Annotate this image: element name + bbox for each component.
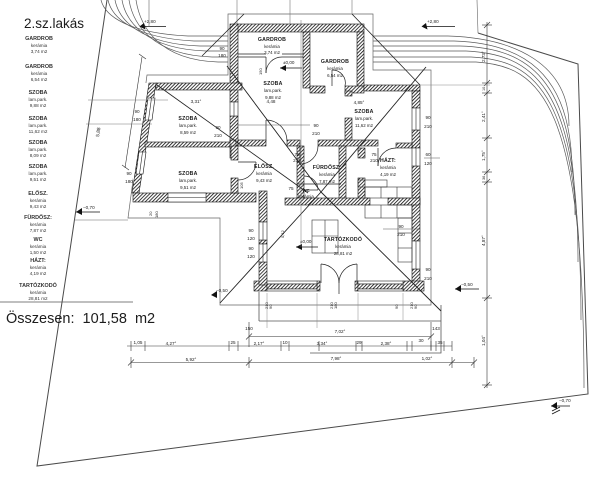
svg-text:lam.park.: lam.park. <box>179 178 197 183</box>
svg-text:kerámia: kerámia <box>30 290 47 295</box>
svg-text:5,92°: 5,92° <box>186 357 197 362</box>
svg-text:210: 210 <box>370 158 378 163</box>
svg-text:9,88 m2: 9,88 m2 <box>30 103 47 108</box>
svg-text:kerámia: kerámia <box>380 165 396 170</box>
svg-text:lam.park.: lam.park. <box>355 116 373 121</box>
svg-text:90: 90 <box>219 46 225 51</box>
svg-text:−0,50: −0,50 <box>216 288 228 293</box>
svg-text:1,05: 1,05 <box>134 340 143 345</box>
svg-text:10: 10 <box>482 87 486 91</box>
svg-text:3,31°: 3,31° <box>191 99 202 104</box>
svg-text:−0,70: −0,70 <box>83 205 95 210</box>
svg-text:25: 25 <box>230 340 236 345</box>
svg-text:210: 210 <box>424 276 432 281</box>
svg-text:3,74 m2: 3,74 m2 <box>264 50 280 55</box>
svg-text:90: 90 <box>398 224 404 229</box>
svg-text:2.sz.lakás: 2.sz.lakás <box>24 16 84 31</box>
svg-text:11,62 m2: 11,62 m2 <box>29 129 48 134</box>
svg-text:SZOBA: SZOBA <box>29 90 48 96</box>
svg-text:kerámia: kerámia <box>256 171 272 176</box>
svg-text:6,54 m2: 6,54 m2 <box>31 77 48 82</box>
svg-text:75: 75 <box>294 152 300 157</box>
svg-text:8,59 m2: 8,59 m2 <box>180 130 196 135</box>
svg-text:9,51 m2: 9,51 m2 <box>30 177 47 182</box>
svg-text:GARDROB: GARDROB <box>25 64 53 70</box>
svg-text:210: 210 <box>312 131 320 136</box>
svg-text:75: 75 <box>371 152 377 157</box>
svg-text:GARDROB: GARDROB <box>321 59 349 65</box>
svg-text:90: 90 <box>425 115 431 120</box>
svg-text:143: 143 <box>432 326 440 331</box>
svg-text:lam.park.: lam.park. <box>179 123 197 128</box>
svg-text:ELŐSZ.: ELŐSZ. <box>28 190 48 197</box>
svg-text:9,43 m2: 9,43 m2 <box>30 204 47 209</box>
svg-text:180: 180 <box>218 53 226 58</box>
svg-text:0,12: 0,12 <box>280 229 285 238</box>
svg-text:120: 120 <box>424 161 432 166</box>
svg-text:1,50 m2: 1,50 m2 <box>30 250 47 255</box>
svg-text:2,38°: 2,38° <box>381 341 392 346</box>
svg-text:HÁZT:: HÁZT: <box>380 157 396 164</box>
svg-text:kerámia: kerámia <box>319 172 335 177</box>
svg-text:90: 90 <box>134 109 140 114</box>
svg-text:90: 90 <box>215 125 221 130</box>
svg-text:HÁZT:: HÁZT: <box>30 257 46 264</box>
svg-text:6,54 m2: 6,54 m2 <box>327 73 343 78</box>
svg-text:Összesen: 101,58 m2: Összesen: 101,58 m2 <box>6 309 155 327</box>
svg-text:2,73°: 2,73° <box>481 51 486 62</box>
svg-text:29: 29 <box>356 340 362 345</box>
svg-text:9,43 m2: 9,43 m2 <box>256 178 272 183</box>
svg-text:GARDROB: GARDROB <box>25 36 53 42</box>
svg-text:WC: WC <box>34 237 43 243</box>
svg-text:36: 36 <box>482 176 486 180</box>
svg-text:kerámia: kerámia <box>327 66 343 71</box>
svg-text:TARTÓZKODÓ: TARTÓZKODÓ <box>19 281 57 289</box>
svg-text:2,41°: 2,41° <box>481 111 486 122</box>
svg-text:+2,80: +2,80 <box>144 19 156 24</box>
svg-text:28,81 m2: 28,81 m2 <box>334 251 353 256</box>
svg-text:kerámia: kerámia <box>31 71 48 76</box>
svg-text:9,51 m2: 9,51 m2 <box>180 185 196 190</box>
svg-text:4,48: 4,48 <box>267 99 276 104</box>
svg-text:lam.park.: lam.park. <box>29 147 48 152</box>
svg-text:−0,50: −0,50 <box>461 282 473 287</box>
svg-text:4,85°: 4,85° <box>354 100 365 105</box>
svg-text:1,04°: 1,04° <box>481 335 486 346</box>
svg-text:WC: WC <box>302 188 310 193</box>
svg-text:kerámia: kerámia <box>30 265 47 270</box>
svg-text:180: 180 <box>133 117 141 122</box>
svg-text:kerámia: kerámia <box>31 43 48 48</box>
svg-text:210: 210 <box>329 302 334 309</box>
svg-text:GARDROB: GARDROB <box>258 37 286 43</box>
svg-text:120: 120 <box>247 254 255 259</box>
svg-text:lam.park.: lam.park. <box>29 97 48 102</box>
svg-text:7,02°: 7,02° <box>335 329 346 334</box>
svg-text:3,74 m2: 3,74 m2 <box>31 49 48 54</box>
svg-text:lam.park.: lam.park. <box>29 171 48 176</box>
svg-text:120: 120 <box>247 236 255 241</box>
svg-text:90: 90 <box>413 304 418 309</box>
svg-text:90: 90 <box>126 171 132 176</box>
svg-text:3,34°: 3,34° <box>317 341 328 346</box>
svg-text:150: 150 <box>258 68 263 75</box>
svg-text:7,87 m2: 7,87 m2 <box>319 179 335 184</box>
svg-text:FÜRDŐSZ:: FÜRDŐSZ: <box>24 214 52 221</box>
svg-text:kerámia: kerámia <box>30 244 47 249</box>
svg-text:20: 20 <box>148 211 153 216</box>
svg-text:105: 105 <box>239 182 244 189</box>
svg-text:4,27°: 4,27° <box>166 341 177 346</box>
svg-text:kerámia: kerámia <box>335 244 351 249</box>
svg-text:210: 210 <box>264 302 269 309</box>
svg-text:+2,80: +2,80 <box>427 19 439 24</box>
svg-text:TARTÓZKODÓ: TARTÓZKODÓ <box>324 235 362 243</box>
svg-text:180: 180 <box>125 179 133 184</box>
svg-text:lam.park.: lam.park. <box>29 123 48 128</box>
svg-text:SZOBA: SZOBA <box>29 116 48 122</box>
svg-text:210: 210 <box>214 133 222 138</box>
svg-text:SZOBA: SZOBA <box>29 164 48 170</box>
svg-text:90: 90 <box>425 267 431 272</box>
svg-text:1,75°: 1,75° <box>481 150 486 161</box>
svg-text:4,19 m2: 4,19 m2 <box>380 172 396 177</box>
svg-text:90: 90 <box>394 304 399 309</box>
svg-text:11,62 m2: 11,62 m2 <box>355 123 374 128</box>
svg-text:90: 90 <box>248 246 254 251</box>
svg-text:7,98°: 7,98° <box>331 356 342 361</box>
svg-text:SZOBA: SZOBA <box>263 81 282 87</box>
svg-text:180: 180 <box>154 211 159 218</box>
svg-text:210: 210 <box>293 158 301 163</box>
svg-text:35: 35 <box>437 340 443 345</box>
svg-text:−0,70: −0,70 <box>559 398 571 403</box>
svg-text:30: 30 <box>418 338 424 343</box>
svg-text:8,09 m2: 8,09 m2 <box>30 153 47 158</box>
svg-text:4,19 m2: 4,19 m2 <box>30 271 47 276</box>
svg-text:FÜRDŐSZ:: FÜRDŐSZ: <box>313 164 341 171</box>
svg-text:SZOBA: SZOBA <box>178 116 197 122</box>
svg-text:90: 90 <box>248 228 254 233</box>
svg-text:210: 210 <box>397 232 405 237</box>
svg-text:kerámia: kerámia <box>264 44 280 49</box>
svg-text:7,87 m2: 7,87 m2 <box>30 228 47 233</box>
svg-text:kerámia: kerámia <box>30 198 47 203</box>
svg-text:kerámia: kerámia <box>298 194 314 199</box>
svg-text:90: 90 <box>313 123 319 128</box>
svg-text:kerámia: kerámia <box>30 222 47 227</box>
svg-text:2,17°: 2,17° <box>254 341 265 346</box>
svg-text:SZOBA: SZOBA <box>178 171 197 177</box>
svg-text:±0,00: ±0,00 <box>283 60 295 65</box>
svg-text:ELŐSZ.: ELŐSZ. <box>254 163 274 170</box>
svg-text:10: 10 <box>282 340 288 345</box>
svg-text:60: 60 <box>425 152 431 157</box>
svg-text:lam.park.: lam.park. <box>264 88 282 93</box>
svg-text:28,81 m2: 28,81 m2 <box>28 296 48 301</box>
svg-text:±0,00: ±0,00 <box>300 239 312 244</box>
svg-text:210: 210 <box>424 124 432 129</box>
svg-text:75: 75 <box>288 186 294 191</box>
svg-text:SZOBA: SZOBA <box>354 109 373 115</box>
svg-text:1,02°: 1,02° <box>422 356 433 361</box>
svg-text:150: 150 <box>245 326 253 331</box>
svg-text:4,87°: 4,87° <box>481 235 486 246</box>
svg-text:SZOBA: SZOBA <box>29 140 48 146</box>
